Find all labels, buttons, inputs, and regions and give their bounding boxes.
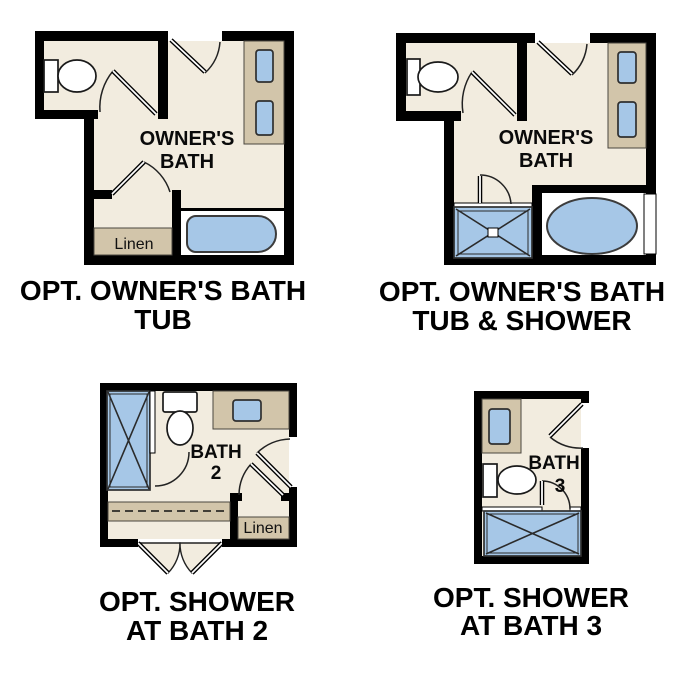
- room-label: BATH: [519, 150, 573, 172]
- plan-caption: OPT. SHOWER: [433, 582, 629, 613]
- shower-glass-panel: [150, 391, 155, 453]
- sink: [618, 102, 636, 137]
- toilet-tank: [163, 392, 197, 412]
- shower-drain: [488, 228, 498, 237]
- toilet-bowl: [418, 62, 458, 92]
- room-label: BATH: [160, 151, 214, 173]
- plan-bath2-shower: BATH 2 Linen OPT. SHOWER AT BATH 2: [99, 383, 297, 646]
- floor-plans-svg: OWNER'S BATH Linen OPT. OWNER'S BATH TUB: [0, 0, 687, 687]
- sink: [256, 101, 273, 135]
- toilet-tank: [44, 60, 58, 92]
- plan-caption: TUB & SHOWER: [412, 305, 631, 336]
- plan-bath3-shower: BATH 3 OPT. SHOWER AT BATH 3: [433, 391, 629, 641]
- room-label: OWNER'S: [499, 127, 594, 149]
- bathtub: [187, 216, 276, 252]
- plan-caption: TUB: [134, 304, 192, 335]
- toilet-bowl: [58, 60, 96, 92]
- plan-caption: AT BATH 3: [460, 610, 602, 641]
- double-door-swing: [138, 543, 222, 573]
- room-label: 3: [555, 476, 566, 497]
- sink: [618, 52, 636, 83]
- shower: [484, 511, 581, 556]
- plan-caption: OPT. SHOWER: [99, 586, 295, 617]
- sink: [489, 409, 510, 444]
- shower: [107, 391, 150, 490]
- tub-alcove-divider: [181, 208, 284, 211]
- room-label: BATH: [528, 453, 579, 474]
- toilet-bowl: [167, 411, 193, 445]
- room-label: OWNER'S: [140, 128, 235, 150]
- plan-owners-bath-tub: OWNER'S BATH Linen OPT. OWNER'S BATH TUB: [20, 31, 306, 335]
- shower: [454, 207, 532, 258]
- plan-caption: AT BATH 2: [126, 615, 268, 646]
- linen-label: Linen: [243, 520, 282, 537]
- floor-plan-sheet: OWNER'S BATH Linen OPT. OWNER'S BATH TUB: [0, 0, 687, 687]
- plan-caption: OPT. OWNER'S BATH: [379, 276, 665, 307]
- toilet-tank: [483, 464, 497, 497]
- plan-caption: OPT. OWNER'S BATH: [20, 275, 306, 306]
- tub-deck-ledge: [644, 194, 656, 254]
- sink: [233, 400, 261, 421]
- room-label: 2: [211, 463, 222, 484]
- linen-label: Linen: [114, 236, 153, 253]
- plan-owners-bath-tub-shower: OWNER'S BATH OPT. OWNER'S BATH TUB & SHO…: [379, 33, 665, 336]
- closet-shelf: [108, 502, 230, 521]
- room-label: BATH: [190, 442, 241, 463]
- oval-bathtub: [547, 198, 637, 254]
- sink: [256, 50, 273, 82]
